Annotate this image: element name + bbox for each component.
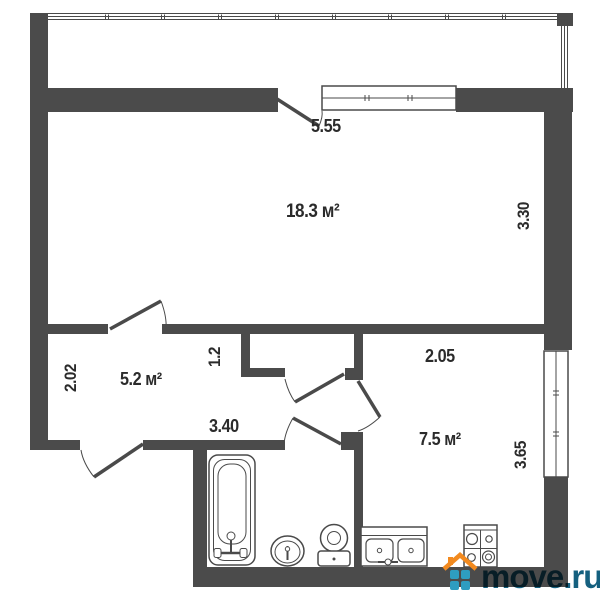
dim-balcony-wall-width: 5.55 (311, 116, 341, 137)
entrance-door (81, 444, 143, 477)
kitchen-door (358, 381, 380, 431)
watermark-text: move.ru (481, 558, 600, 596)
bathroom-door (284, 418, 341, 444)
dim-kitchen-width: 2.05 (425, 346, 455, 367)
floor-plan: 18.3 м² 5.2 м² 7.5 м² 5.55 3.30 2.02 1.2… (0, 0, 600, 600)
kitchen-area-label: 7.5 м² (419, 429, 461, 450)
kitchen-sink-icon (361, 527, 427, 566)
living-room-window-icon (322, 86, 456, 110)
plan-linework (0, 0, 600, 600)
corridor-door (285, 374, 344, 402)
dim-hallway-width: 3.40 (209, 416, 239, 437)
wash-basin-icon (271, 536, 304, 566)
dim-living-depth: 3.30 (514, 189, 534, 243)
kitchen-window-icon (544, 351, 568, 477)
dim-hallway-depth: 2.02 (61, 351, 81, 405)
dim-kitchen-depth: 3.65 (511, 428, 531, 482)
toilet-icon (318, 525, 350, 567)
living-room-area-label: 18.3 м² (286, 201, 339, 223)
bathtub-icon (209, 455, 255, 565)
living-room-door (110, 301, 166, 329)
hallway-area-label: 5.2 м² (120, 369, 162, 390)
dim-corridor-width: 1.2 (205, 330, 225, 384)
balcony-railing (48, 14, 568, 89)
